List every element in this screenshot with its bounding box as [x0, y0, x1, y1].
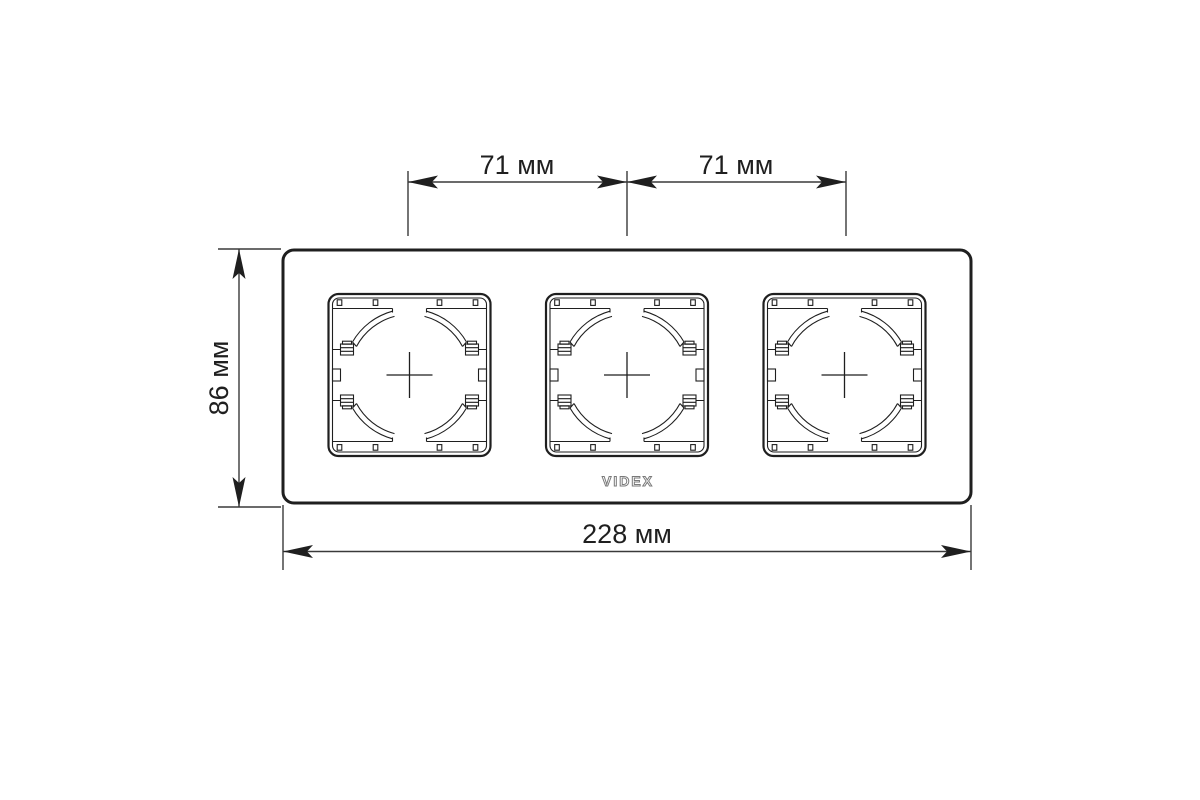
dimension-label-span-right: 71 мм — [671, 150, 801, 180]
extension-lines — [218, 171, 971, 570]
dimension-label-width: 228 мм — [562, 519, 692, 549]
dimension-label-span-left: 71 мм — [452, 150, 582, 180]
dimension-label-height: 86 мм — [204, 313, 234, 443]
faceplate-dimension-drawing — [0, 0, 1200, 800]
dimension-lines — [239, 182, 971, 552]
dimension-arrowheads — [233, 176, 972, 559]
socket-module-1 — [329, 294, 491, 456]
socket-module-3 — [764, 294, 926, 456]
technical-drawing-page: 71 мм 71 мм 86 мм 228 мм VIDEX — [0, 0, 1200, 800]
brand-logo: VIDEX — [578, 473, 678, 489]
socket-module-2 — [546, 294, 708, 456]
